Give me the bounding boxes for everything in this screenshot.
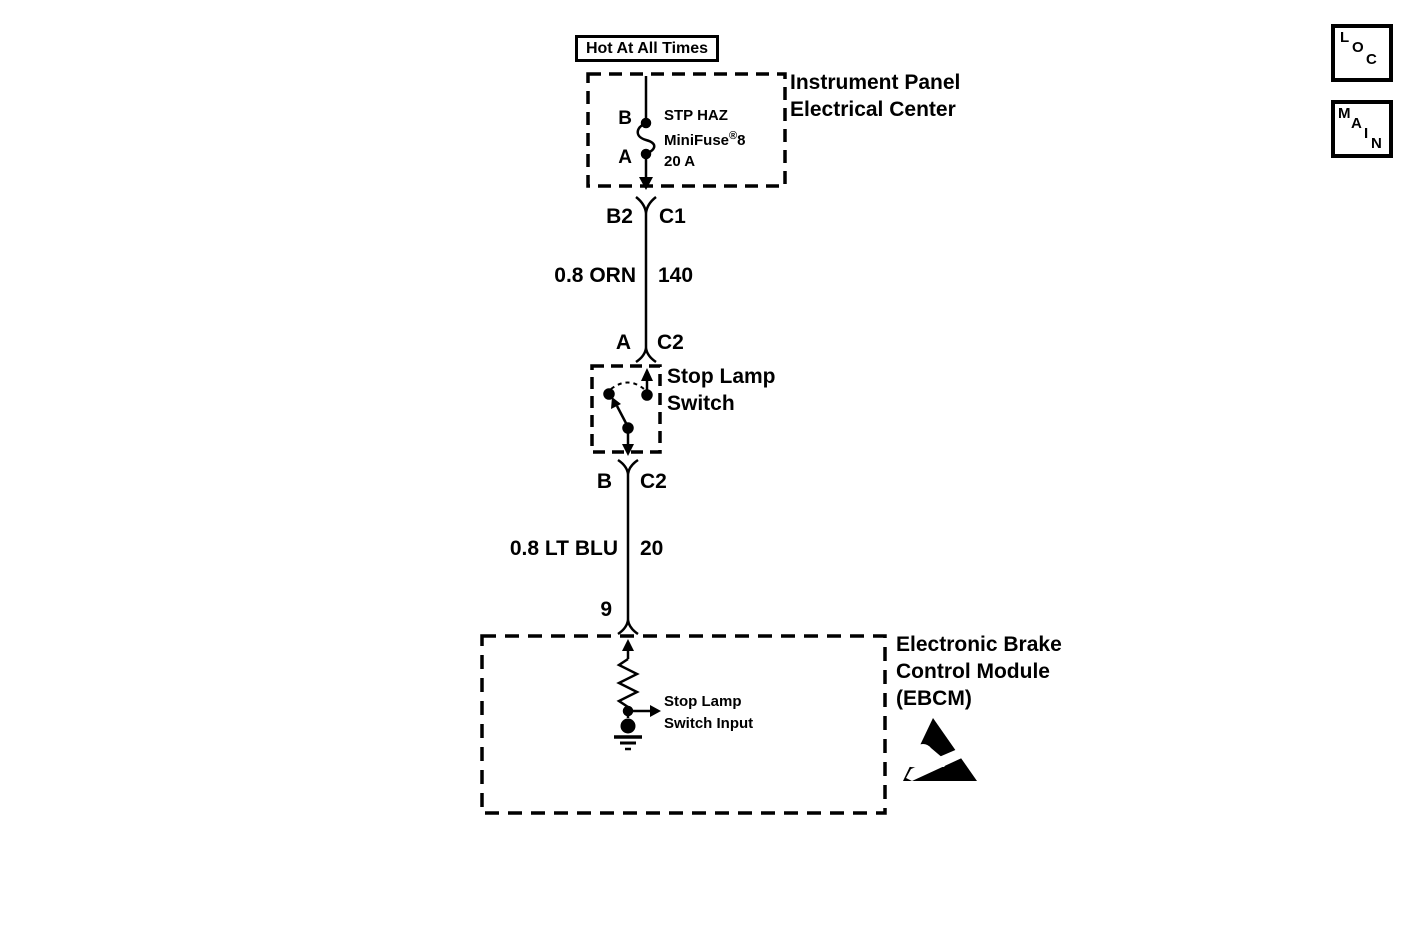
connector-b2-c1-icon <box>636 197 656 213</box>
loc-letter-l: L <box>1340 29 1349 46</box>
connector-pin-b2-label: B2 <box>555 203 633 230</box>
registered-mark: ® <box>729 130 737 142</box>
ipec-title-line1: Instrument Panel <box>790 69 960 96</box>
switch-title-line2: Switch <box>667 390 776 417</box>
stop-lamp-switch-icon <box>605 368 654 456</box>
esd-warning-icon <box>903 718 977 781</box>
main-letter-n: N <box>1371 135 1382 152</box>
ground-icon <box>614 719 642 750</box>
main-button[interactable]: M A I N <box>1331 100 1393 158</box>
connector-pin-a-label: A <box>555 329 631 356</box>
connector-a-c2-icon <box>636 348 656 362</box>
ebcm-input-label: Stop Lamp Switch Input <box>664 691 753 735</box>
main-letter-i: I <box>1364 125 1368 142</box>
ebcm-title: Electronic Brake Control Module (EBCM) <box>896 631 1062 712</box>
ebcm-entry-arrow-icon <box>622 639 634 659</box>
wire-orn-circuit: 140 <box>658 262 693 289</box>
loc-letter-c: C <box>1366 51 1377 68</box>
power-source-label: Hot At All Times <box>575 35 719 62</box>
ebcm-input-line1: Stop Lamp <box>664 691 753 713</box>
connector-pin-b-label: B <box>540 468 612 495</box>
connector-pin9-icon <box>618 620 638 634</box>
fuse-terminal-b-label: B <box>602 107 632 131</box>
switch-title-line1: Stop Lamp <box>667 363 776 390</box>
fuse-icon <box>638 76 655 190</box>
ebcm-title-line3: (EBCM) <box>896 685 1062 712</box>
connector-pin-c2-label: C2 <box>657 329 684 356</box>
fuse-name-line1: STP HAZ <box>664 105 745 126</box>
connector-pin-c2b-label: C2 <box>640 468 667 495</box>
wire-ltblu-label: 0.8 LT BLU <box>450 535 618 562</box>
fuse-terminal-a-label: A <box>602 146 632 170</box>
fuse-name-label: STP HAZ MiniFuse®8 20 A <box>664 105 745 172</box>
ebcm-pin-label: 9 <box>560 596 612 623</box>
ipec-title-line2: Electrical Center <box>790 96 960 123</box>
ebcm-title-line2: Control Module <box>896 658 1062 685</box>
connector-b-c2-icon <box>618 460 638 474</box>
loc-button[interactable]: L O C <box>1331 24 1393 82</box>
ebcm-title-line1: Electronic Brake <box>896 631 1062 658</box>
switch-title: Stop Lamp Switch <box>667 363 776 417</box>
signal-arrow-icon <box>624 705 661 717</box>
fuse-name-line2: MiniFuse®8 <box>664 126 745 151</box>
ebcm-input-line2: Switch Input <box>664 713 753 735</box>
wiring-diagram-page: Hot At All Times Instrument Panel Electr… <box>0 0 1426 933</box>
loc-letter-o: O <box>1352 39 1364 56</box>
wire-orn-label: 0.8 ORN <box>470 262 636 289</box>
main-letter-a: A <box>1351 115 1362 132</box>
main-letter-m: M <box>1338 105 1351 122</box>
connector-pin-c1-label: C1 <box>659 203 686 230</box>
fuse-rating: 20 A <box>664 151 745 172</box>
ipec-title: Instrument Panel Electrical Center <box>790 69 960 123</box>
wire-ltblu-circuit: 20 <box>640 535 663 562</box>
